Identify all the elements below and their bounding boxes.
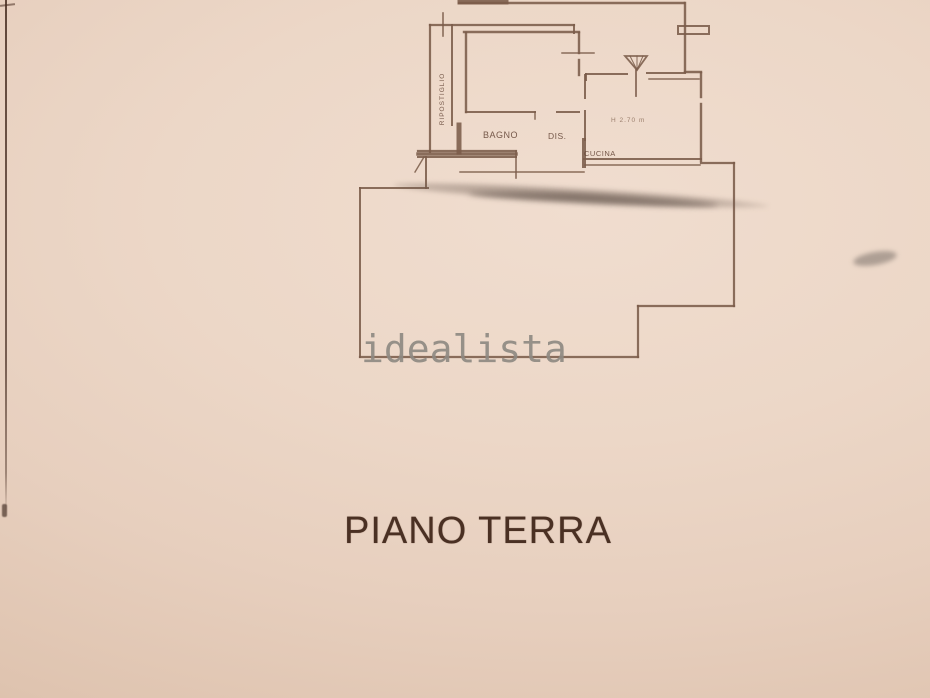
room-label-dis: DIS. (548, 131, 567, 141)
wall-flag-symbol (678, 26, 709, 34)
room-label-bagno: BAGNO (483, 130, 518, 140)
door-swing-line (415, 157, 424, 172)
scanned-floor-plan-page: RIPOSTIGLIO BAGNO DIS. CUCINA H 2.70 m i… (0, 0, 930, 698)
floor-title: PIANO TERRA (344, 510, 612, 553)
watermark: idealista (361, 330, 567, 368)
room-label-cucina: CUCINA (584, 149, 616, 158)
height-annotation: H 2.70 m (611, 117, 645, 124)
flue-symbol (625, 56, 647, 96)
room-label-ripostiglio: RIPOSTIGLIO (408, 64, 478, 134)
